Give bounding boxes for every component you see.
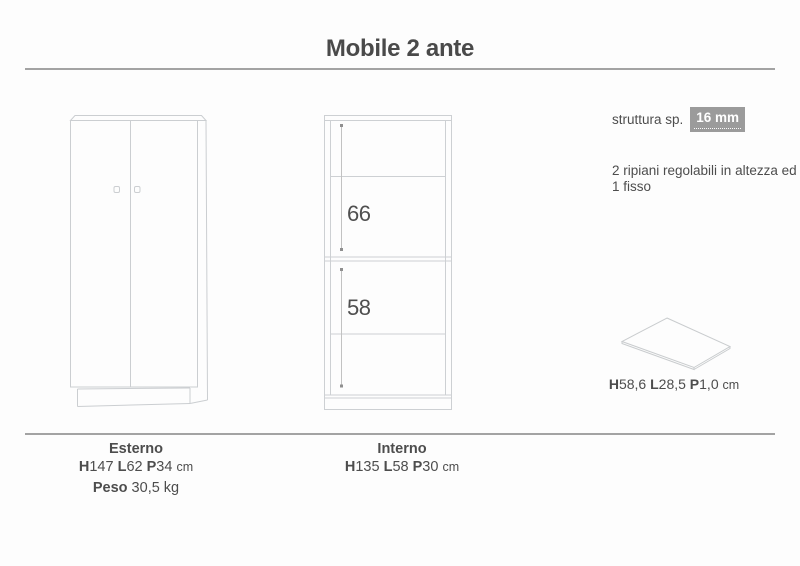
shelf-panel-drawing	[622, 318, 730, 370]
interno-l-value: 58	[392, 459, 412, 475]
interior-upper-height-label: 66	[347, 203, 370, 225]
interior-lower-height-label: 58	[347, 297, 370, 319]
weight-value: 30,5 kg	[128, 480, 180, 496]
esterno-p-label: P	[147, 459, 157, 475]
shelf-l-label: L	[650, 376, 659, 392]
shelves-note-line1: 2 ripiani regolabili in altezza ed	[612, 163, 800, 179]
interno-p-label: P	[413, 459, 423, 475]
thickness-badge: 16 mm	[690, 107, 745, 132]
shelf-h-label: H	[609, 376, 619, 392]
external-dimensions-title: Esterno	[36, 441, 236, 457]
internal-dimensions-values: H135 L58 P30 cm	[302, 459, 502, 475]
structure-thickness-label: struttura sp.	[612, 112, 683, 127]
esterno-h-label: H	[79, 459, 89, 475]
internal-dimensions-title: Interno	[302, 441, 502, 457]
internal-dimensions-block: Interno H135 L58 P30 cm	[302, 441, 502, 475]
shelves-note: 2 ripiani regolabili in altezza ed 1 fis…	[612, 163, 800, 194]
structure-thickness-row: struttura sp. 16 mm	[612, 107, 745, 132]
shelves-note-line2: 1 fisso	[612, 179, 800, 195]
weight-label: Peso	[93, 480, 128, 496]
door-knob-left	[114, 187, 120, 193]
shelf-panel-dimensions: H58,6 L28,5 P1,0 cm	[593, 376, 755, 392]
external-dimensions-values: H147 L62 P34 cm	[36, 459, 236, 475]
cabinet-exterior-drawing	[71, 116, 208, 407]
external-dimensions-block: Esterno H147 L62 P34 cm Peso 30,5 kg	[36, 441, 236, 496]
shelf-l-value: 28,5	[659, 376, 690, 392]
thickness-badge-value: 16 mm	[696, 110, 739, 125]
esterno-l-value: 62	[126, 459, 146, 475]
esterno-unit: cm	[176, 460, 193, 474]
interno-p-value: 30	[422, 459, 442, 475]
shelf-p-value: 1,0	[699, 376, 722, 392]
door-knob-right	[135, 187, 141, 193]
cabinet-interior-drawing	[325, 116, 452, 410]
shelf-p-label: P	[690, 376, 699, 392]
thickness-dimension-mark	[694, 128, 741, 129]
esterno-h-value: 147	[89, 459, 117, 475]
spec-sheet: Mobile 2 ante	[0, 0, 800, 566]
weight-line: Peso 30,5 kg	[36, 480, 236, 496]
interno-unit: cm	[442, 460, 459, 474]
interior-dimension-lines	[340, 124, 343, 388]
shelf-h-value: 58,6	[619, 376, 650, 392]
interno-h-label: H	[345, 459, 355, 475]
interno-h-value: 135	[355, 459, 383, 475]
esterno-p-value: 34	[156, 459, 176, 475]
shelf-unit: cm	[723, 378, 740, 392]
